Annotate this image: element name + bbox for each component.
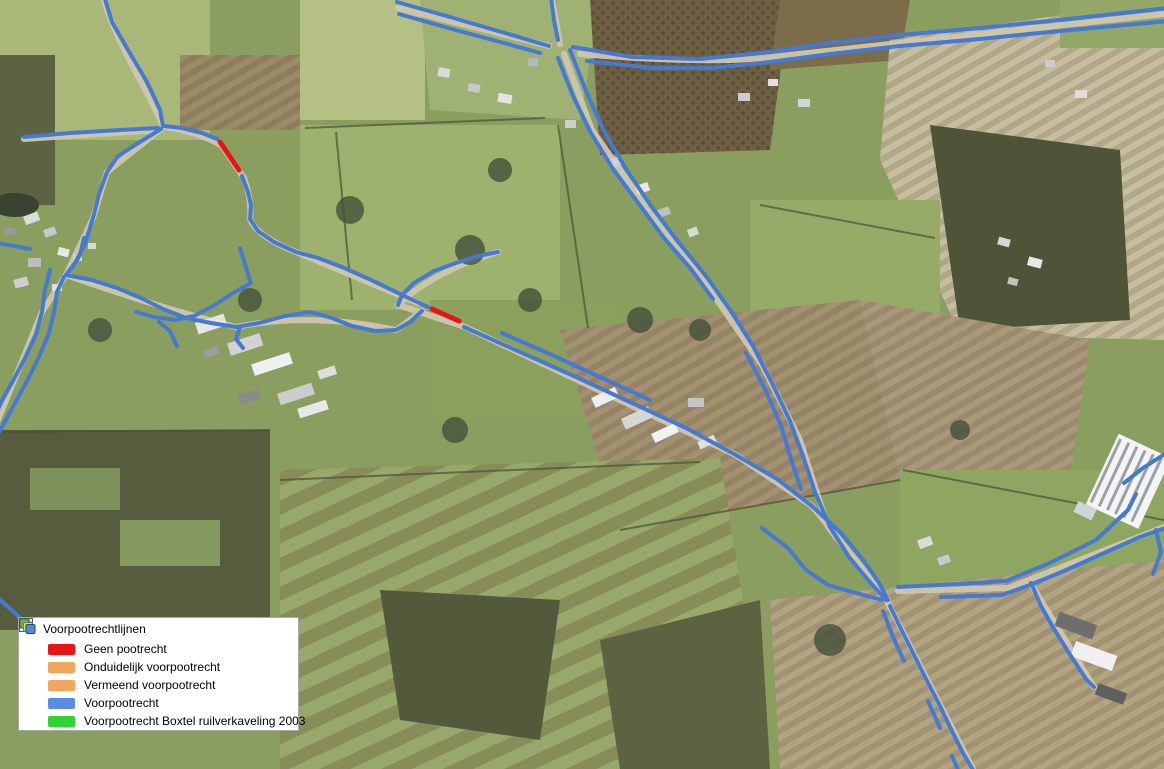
voorpootrecht-line [952,756,958,769]
voorpootrecht-line [136,283,251,320]
geen-pootrecht-line [220,142,239,170]
voorpootrecht-line [883,611,904,661]
voorpootrecht-line [398,252,498,305]
voorpootrecht-line [399,14,540,53]
voorpootrecht-line [164,126,217,139]
voorpootrecht-line [0,277,64,437]
legend-item-label: Geen pootrecht [84,642,167,656]
voorpootrecht-line [558,58,713,299]
voorpootrecht-line [1124,452,1164,483]
voorpootrecht-line [159,322,177,346]
voorpootrecht-line [898,494,1136,587]
map-window: Voorpootrechtlijnen Geen pootrecht Ondui… [0,0,1164,769]
voorpootrecht-line [240,248,250,281]
legend-item-voorpootrecht[interactable]: Voorpootrecht [19,694,298,712]
legend-panel: Voorpootrechtlijnen Geen pootrecht Ondui… [18,617,299,731]
swatch-onduidelijk-voorpootrecht [48,662,75,673]
voorpootrecht-line [72,238,84,268]
voorpootrecht-line [502,333,650,400]
legend-item-label: Voorpootrecht [84,696,159,710]
legend-item-voorpootrecht-boxtel[interactable]: Voorpootrecht Boxtel ruilverkaveling 200… [19,712,298,730]
swatch-geen-pootrecht [48,644,75,655]
legend-item-onduidelijk-voorpootrecht[interactable]: Onduidelijk voorpootrecht [19,658,298,676]
legend-item-geen-pootrecht[interactable]: Geen pootrecht [19,640,298,658]
voorpootrecht-line [0,243,30,249]
voorpootrecht-line [587,21,1164,68]
legend-title[interactable]: Voorpootrechtlijnen [43,622,146,636]
voorpootrecht-line [242,176,251,219]
legend-item-vermeend-voorpootrecht[interactable]: Vermeend voorpootrecht [19,676,298,694]
voorpootrecht-line [66,275,422,331]
voorpootrecht-line [570,50,886,600]
voorpootrecht-line [0,270,50,413]
voorpootrecht-line [24,128,158,137]
voorpootrecht-line [746,353,801,489]
voorpootrecht-line [1153,530,1161,574]
legend-item-label: Onduidelijk voorpootrecht [84,660,220,674]
legend-item-label: Voorpootrecht Boxtel ruilverkaveling 200… [84,714,305,728]
legend-item-label: Vermeend voorpootrecht [84,678,215,692]
geen-pootrecht-line [432,309,459,321]
voorpootrecht-line [464,327,888,600]
voorpootrecht-line [1031,583,1094,687]
voorpootrecht-line [236,327,243,348]
voorpootrecht-line [890,606,973,769]
swatch-voorpootrecht [48,698,75,709]
legend-header: Voorpootrechtlijnen [19,618,298,640]
voorpootrecht-line [397,2,549,46]
swatch-vermeend-voorpootrecht [48,680,75,691]
swatch-voorpootrecht-boxtel [48,716,75,727]
voorpootrecht-line [551,0,558,40]
voorpootrecht-line [104,0,163,126]
